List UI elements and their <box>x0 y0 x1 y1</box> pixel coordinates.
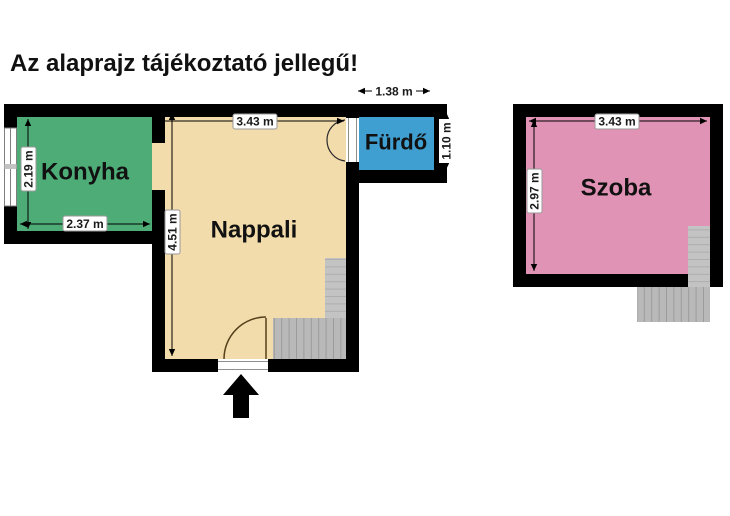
stairs-upper-flight <box>325 258 346 318</box>
wall-szoba-left <box>513 104 526 287</box>
floorplan-drawing: 2.37 m 2.19 m 3.43 m 4.51 m 1.38 m 1.10 … <box>0 0 730 516</box>
room-label-furdo: Fürdő <box>365 130 427 155</box>
stairs-upper-flight <box>688 226 710 287</box>
wall-konyha-nappali-lower <box>152 190 165 372</box>
konyha-nappali-opening <box>152 143 165 190</box>
room-label-szoba: Szoba <box>581 175 652 202</box>
dim-label-furdo-width: 1.38 m <box>375 85 412 99</box>
dim-label-nappali-width: 3.43 m <box>236 115 273 129</box>
window-icon <box>5 128 17 206</box>
window-mid-rail <box>5 164 17 169</box>
stairs-lower-flight <box>637 287 710 322</box>
wall-konyha-nappali-upper <box>152 104 165 143</box>
dim-label-szoba-width: 3.43 m <box>598 115 635 129</box>
wall-szoba-bottom <box>513 274 688 287</box>
threshold-sill <box>218 359 268 372</box>
dim-label-konyha-width: 2.37 m <box>66 217 103 231</box>
dim-label-nappali-height: 4.51 m <box>166 213 180 250</box>
room-label-konyha: Konyha <box>41 159 130 186</box>
dim-label-szoba-height: 2.97 m <box>528 172 542 209</box>
wall-szoba-right <box>710 104 723 287</box>
furdo-door-threshold <box>346 118 359 162</box>
wall-top-left-unit <box>4 104 447 117</box>
wall-furdo-bottom <box>346 170 447 183</box>
dim-label-furdo-height: 1.10 m <box>440 122 454 159</box>
floorplan-canvas: Az alaprajz tájékoztató jellegű! <box>0 0 730 516</box>
threshold-sill <box>346 118 359 162</box>
room-label-nappali: Nappali <box>211 217 298 244</box>
dim-label-konyha-height: 2.19 m <box>22 150 36 187</box>
wall-konyha-bottom <box>4 231 165 244</box>
entrance-arrow-icon <box>223 374 259 418</box>
stairs-lower-flight <box>273 318 346 359</box>
entrance-threshold <box>218 359 268 372</box>
